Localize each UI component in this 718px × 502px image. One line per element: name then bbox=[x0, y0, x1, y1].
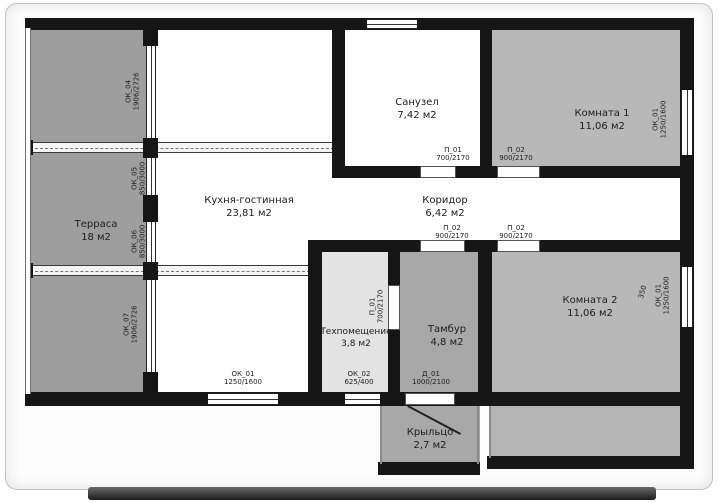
label-porch: Крыльцо 2,7 м2 bbox=[380, 426, 480, 452]
label-ok02: ОК_02 625/400 bbox=[319, 370, 399, 387]
pier-post-1 bbox=[143, 28, 158, 46]
opening-size: 850/3000 bbox=[139, 201, 147, 281]
opening-size: 625/400 bbox=[319, 378, 399, 386]
window-bathroom-top bbox=[367, 19, 417, 29]
opening-tag: ОК_02 bbox=[319, 370, 399, 378]
table-edge-shadow bbox=[88, 487, 656, 500]
door-d01-entrance bbox=[405, 393, 455, 405]
door-p02-hall bbox=[420, 240, 465, 252]
window-ok01-kitchen bbox=[208, 393, 278, 405]
label-techroom: Техпомещение 3,8 м2 bbox=[306, 327, 406, 350]
label-d01: Д_01 1000/2100 bbox=[391, 370, 471, 387]
label-ok01-room2: ОК_01 1250/1600 bbox=[655, 255, 672, 335]
opening-tag: ОК_04 bbox=[125, 51, 133, 131]
terrace-band-upper bbox=[25, 142, 334, 153]
opening-tag: ОК_06 bbox=[131, 201, 139, 281]
room-name: Тамбур bbox=[397, 323, 497, 336]
label-ok06: ОК_06 850/3000 bbox=[131, 201, 148, 281]
label-ok01-kitchen: ОК_01 1250/1600 bbox=[203, 370, 283, 387]
opening-tag: ОК_01 bbox=[655, 255, 663, 335]
window-ok01-room2 bbox=[681, 267, 693, 327]
opening-size: 900/2170 bbox=[476, 232, 556, 240]
wall-right bbox=[680, 18, 694, 469]
opening-size: 700/2170 bbox=[377, 266, 385, 346]
label-kitchen: Кухня-гостинная 23,81 м2 bbox=[169, 194, 329, 220]
opening-tag: Д_01 bbox=[391, 370, 471, 378]
opening-tag: ОК_01 bbox=[652, 79, 660, 159]
opening-size: 1906/2726 bbox=[133, 51, 141, 131]
window-ok02 bbox=[345, 393, 380, 405]
label-p02-room1: П_02 900/2170 bbox=[476, 146, 556, 163]
deck-bottom-bar bbox=[487, 456, 694, 469]
door-p01-bathroom bbox=[420, 166, 456, 178]
room-area: 11,06 м2 bbox=[530, 307, 650, 320]
room-area: 6,42 м2 bbox=[385, 207, 505, 220]
window-ok05 bbox=[146, 158, 156, 195]
terrace-band-lower bbox=[25, 265, 310, 276]
opening-size: 1250/1600 bbox=[663, 255, 671, 335]
room-area: 3,8 м2 bbox=[306, 339, 406, 351]
opening-size: 1250/1600 bbox=[660, 79, 668, 159]
porch-bottom-bar bbox=[378, 462, 480, 475]
opening-tag: ОК_07 bbox=[123, 284, 131, 364]
label-p02-room2: П_02 900/2170 bbox=[476, 224, 556, 241]
label-ok01-room1: ОК_01 1250/1600 bbox=[652, 79, 669, 159]
room-area: 4,8 м2 bbox=[397, 336, 497, 349]
door-p02-room1 bbox=[497, 166, 540, 178]
label-p01-techroom: П_01 700/2170 bbox=[369, 266, 386, 346]
window-ok07 bbox=[146, 280, 156, 372]
room-name: Кухня-гостинная bbox=[169, 194, 329, 207]
label-ok04: ОК_04 1906/2726 bbox=[125, 51, 142, 131]
room-area: 23,81 м2 bbox=[169, 207, 329, 220]
wall-bathroom-west bbox=[332, 18, 345, 178]
label-room2: Комната 2 11,06 м2 bbox=[530, 294, 650, 320]
label-ok07: ОК_07 1906/2726 bbox=[123, 284, 140, 364]
room-area: 2,7 м2 bbox=[380, 439, 480, 452]
terrace-railing-west bbox=[25, 28, 31, 394]
window-ok01-room1 bbox=[681, 90, 693, 155]
deck-edge-left bbox=[489, 406, 491, 458]
label-tambour: Тамбур 4,8 м2 bbox=[397, 323, 497, 349]
room-name: Крыльцо bbox=[380, 426, 480, 439]
floor-plan-photo: Терраса 18 м2 Кухня-гостинная 23,81 м2 С… bbox=[0, 0, 718, 502]
opening-size: 900/2170 bbox=[476, 154, 556, 162]
room-name: Техпомещение bbox=[306, 327, 406, 339]
room-name: Комната 2 bbox=[530, 294, 650, 307]
door-p02-room2 bbox=[497, 240, 540, 252]
window-ok06 bbox=[146, 222, 156, 262]
wall-top bbox=[25, 18, 694, 30]
room-area: 11,06 м2 bbox=[542, 120, 662, 133]
label-corridor: Коридор 6,42 м2 bbox=[385, 194, 505, 220]
opening-size: 1906/2726 bbox=[131, 284, 139, 364]
opening-tag: П_02 bbox=[476, 224, 556, 232]
opening-tag: П_01 bbox=[369, 266, 377, 346]
pier-post-5 bbox=[143, 372, 158, 394]
opening-tag: ОК_01 bbox=[203, 370, 283, 378]
opening-size: 1000/2100 bbox=[391, 378, 471, 386]
label-bathroom: Санузел 7,42 м2 bbox=[357, 96, 477, 122]
room-name: Санузел bbox=[357, 96, 477, 109]
room-name: Комната 1 bbox=[542, 107, 662, 120]
opening-tag: П_02 bbox=[476, 146, 556, 154]
room-area: 7,42 м2 bbox=[357, 109, 477, 122]
room-2 bbox=[490, 250, 682, 394]
label-room1: Комната 1 11,06 м2 bbox=[542, 107, 662, 133]
opening-size: 1250/1600 bbox=[203, 378, 283, 386]
room-name: Коридор bbox=[385, 194, 505, 207]
room-deck bbox=[489, 406, 692, 458]
window-ok04 bbox=[146, 46, 156, 138]
